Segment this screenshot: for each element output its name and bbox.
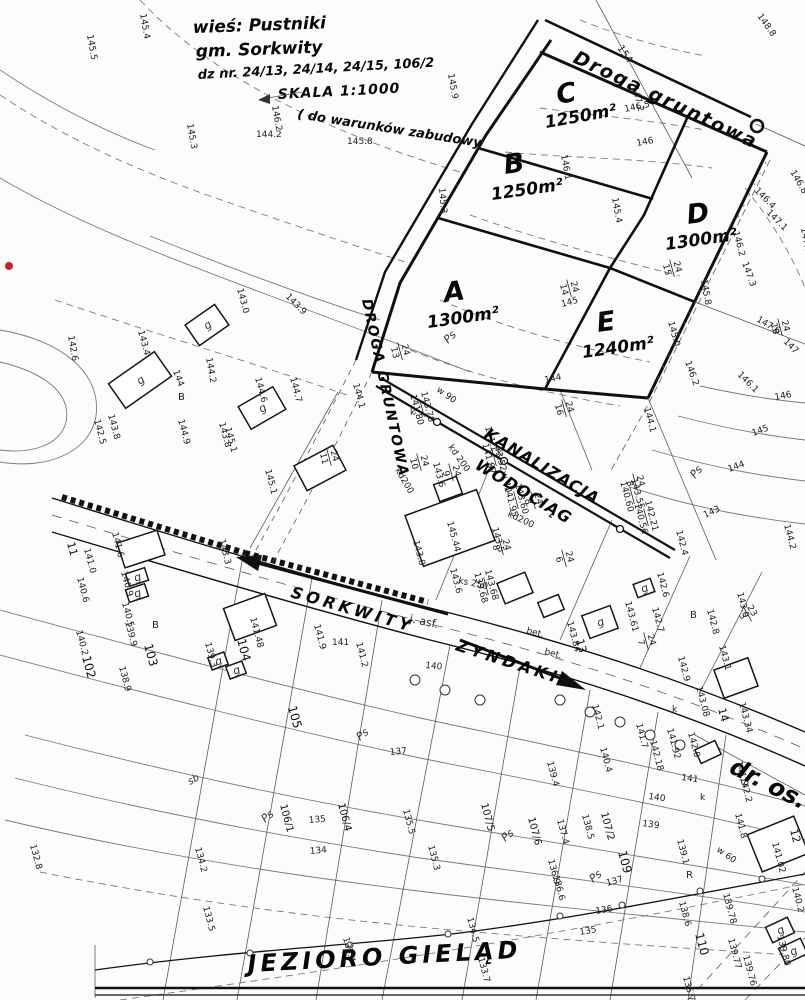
spot-height-label: 141.9 (311, 623, 327, 651)
spot-height-label: 146.4 (752, 186, 777, 211)
spot-height-label: 139.77 (725, 937, 743, 970)
spot-height-label: 141 (681, 773, 699, 785)
spot-height-label: 145.8 (698, 279, 712, 306)
spot-height-label: 137 (389, 747, 407, 758)
plot-number-label: 11 (64, 540, 80, 557)
plot-number-label: 107/5 (478, 802, 496, 833)
building-outline (714, 658, 758, 699)
spot-height-label: 140.4 (597, 746, 613, 774)
spot-height-label: 135.5 (400, 808, 416, 835)
plot-number-label: 106/1 (277, 803, 295, 834)
spot-height-label: 142.6 (65, 335, 79, 362)
spot-height-label: 142.8 (704, 608, 720, 636)
spot-height-label: 140 (425, 661, 443, 672)
fraction-denominator: 7 (635, 639, 646, 647)
spot-height-label: 134.2 (192, 846, 208, 873)
road-surface-label: bet. (543, 647, 563, 661)
spot-height-label: 142.4 (673, 529, 689, 557)
spot-height-label: 143.34 (736, 701, 754, 734)
fraction-denominator: 13 (388, 346, 401, 360)
spot-height-label: 136 (595, 904, 614, 917)
spot-height-label: 147.1 (764, 208, 789, 233)
parcel-fraction-label: 2413 (387, 340, 412, 363)
fraction-denominator: 15 (660, 263, 673, 277)
land-use-label: Ps (687, 463, 705, 481)
plot-number-label: 104 (234, 637, 253, 663)
fraction-numerator: 24 (563, 550, 576, 564)
fraction-denominator: 9 (440, 470, 451, 478)
spot-height-label: 144.1 (641, 406, 657, 433)
spot-height-label: 144.2 (256, 130, 282, 140)
road-surface-label: bet. (525, 626, 545, 640)
spot-height-label: 147.3 (739, 261, 757, 289)
fraction-denominator: 14 (557, 283, 570, 297)
spot-height-label: 142.0 (685, 731, 701, 759)
spot-height-label: 142.7 (649, 606, 665, 633)
spot-height-label: 144 (170, 369, 185, 389)
plot-letter: C (554, 77, 579, 111)
spot-height-label: 143.4 (135, 329, 151, 357)
spot-height-label: 133.5 (200, 905, 216, 932)
map-labels: 145.5145.4148.8154147.2145.9146.2145.314… (27, 12, 805, 1000)
header-note: ( do warunków zabudowy (296, 107, 483, 151)
spot-height-label: 144.9 (175, 418, 191, 446)
spot-height-label: w 90 (434, 385, 458, 406)
spot-height-label: 138.5 (579, 813, 595, 840)
plot-number-label: 106/4 (335, 802, 353, 833)
spot-height-label: 141.0 (81, 547, 97, 575)
spot-height-label: 135 (308, 815, 326, 826)
spot-height-label: 145.3 (184, 123, 198, 150)
spot-height-label: 140 (648, 792, 667, 804)
building: g (185, 304, 229, 345)
spot-height-label: B (152, 620, 159, 631)
top-road-name: Droga gruntowa (570, 47, 762, 154)
spot-height-label: 139.1 (674, 838, 690, 865)
plot-letter: B (502, 147, 527, 181)
fraction-denominator: 16 (552, 403, 565, 417)
scanned-cadastral-map: ggggggggggg 145.5145.4148.8154147.2145.9… (0, 0, 805, 1000)
spot-height-label: 146.2 (269, 105, 283, 132)
building-outline (538, 594, 564, 617)
building: g (108, 352, 171, 409)
buildings-layer: ggggggggggg (108, 304, 805, 963)
spot-height-label: 143.3 (216, 538, 232, 565)
red-mark (5, 262, 13, 270)
scale-arrowhead (258, 94, 270, 104)
spot-height-label: 144 (544, 373, 563, 386)
spot-height-label: 146.1 (735, 370, 760, 395)
plot-area: 1250m² (543, 101, 618, 133)
street-name-br: dr. os. (725, 752, 805, 815)
building (497, 572, 533, 604)
land-use-label: Ps (499, 826, 517, 844)
parcel-fraction-label: 143.70141.80 (407, 390, 436, 426)
spot-height-label: 145.4 (137, 13, 151, 40)
spot-height-label: 139.78 (720, 892, 738, 925)
spot-height-label: 145.3 (436, 187, 448, 214)
spot-height-label: 147 (781, 337, 800, 356)
plot-number-label: 103 (141, 642, 160, 668)
spot-height-label: 146.8 (787, 169, 805, 197)
spot-height-label: 141.6 (109, 531, 125, 559)
spot-height-label: 141.7 (633, 722, 649, 749)
spot-height-label: 143.9 (283, 292, 308, 317)
parcel-fraction-label: 143.68139.68 (471, 568, 500, 604)
boundary-B-A (438, 218, 610, 268)
spot-height-label: 143.61 (622, 600, 640, 633)
land-use-label: Ps (259, 807, 277, 825)
spot-height-label: 147.0 (798, 227, 805, 254)
spot-height-label: 139.4 (544, 760, 560, 788)
spot-height-label: 146 (636, 136, 655, 149)
spot-height-label: 144.1 (350, 382, 366, 409)
spot-height-label: 144.7 (287, 376, 303, 403)
plot-number-label: 107/2 (598, 811, 616, 842)
building (714, 658, 758, 699)
parcel-fraction-label: 2416 (551, 397, 576, 420)
spot-height-label: 142.5 (91, 418, 107, 445)
spot-height-label: 137 (605, 875, 624, 889)
spot-height-label: 142.6 (654, 571, 670, 599)
parcel-fraction-label: 247 (633, 630, 658, 653)
spot-height-label: 137.4 (554, 818, 570, 846)
building (538, 594, 564, 617)
spot-height-label: 138.6 (676, 900, 692, 928)
building: g (633, 578, 655, 597)
plot-number-label: 105 (285, 704, 304, 730)
spot-height-label: 144.2 (203, 357, 217, 384)
spot-height-label: 141 (332, 638, 349, 648)
building-outline (497, 572, 533, 604)
parcel-fraction-label: 246 (551, 547, 576, 570)
spot-height-label: 136.6 (550, 874, 566, 902)
fraction-denominator: 6 (553, 556, 564, 564)
parcel-fraction-label: 2418 (767, 316, 792, 339)
parcel-fraction-label: 2414 (556, 277, 581, 300)
plot-number-label: 109 (615, 849, 634, 875)
parcel-fraction-label: 2415 (659, 257, 684, 280)
spot-height-label: 144.2 (781, 523, 797, 550)
spot-height-label: 141.2 (353, 641, 369, 668)
spot-height-label: 143.8 (105, 413, 121, 441)
plot-area: 1250m² (490, 175, 565, 205)
spot-height-label: k (672, 705, 678, 715)
spot-height-label: 145 (751, 424, 771, 439)
boundary-D-E (610, 268, 695, 302)
spot-height-label: 143.1 (716, 644, 732, 671)
plot-area: 1240m² (581, 333, 656, 363)
fraction-denominator: 3 (736, 612, 748, 622)
spot-height-label: 142.9 (675, 655, 691, 683)
header-scale: SKALA 1:1000 (277, 81, 400, 103)
plot-number-label: 14 (715, 706, 731, 723)
header-commune: gm. Sorkwity (195, 38, 323, 62)
spot-height-label: 143.08 (693, 685, 711, 718)
spot-height-label: 145 (560, 296, 579, 310)
left-road-name: DROGA GRUNTOWA (358, 298, 412, 479)
spot-height-label: 148.8 (755, 12, 778, 39)
spot-height-label: 135.3 (425, 844, 441, 871)
plot-letter: A (440, 275, 467, 309)
building: g (582, 606, 618, 639)
spot-height-label: 143.0 (234, 287, 250, 315)
spot-height-label: k (700, 793, 706, 803)
map-canvas: ggggggggggg 145.5145.4148.8154147.2145.9… (0, 0, 805, 1000)
spot-height-label: 145.8 (347, 137, 373, 147)
direction-west-label: SORKWITY (289, 583, 417, 636)
spot-height-label: 134 (309, 846, 327, 857)
fraction-numerator: 24 (450, 464, 463, 478)
fraction-numerator: 24 (645, 633, 658, 647)
plot-area: 1300m² (426, 303, 501, 333)
spot-height-label: 139 (642, 819, 661, 831)
manhole (617, 526, 624, 533)
land-use-label: Ps (354, 725, 372, 743)
spot-height-label: B (690, 610, 697, 621)
plot-number-label: 107/6 (525, 816, 543, 847)
spot-height-label: R (686, 870, 693, 881)
building: g (226, 661, 247, 680)
plot-area: 1300m² (664, 225, 739, 255)
spot-height-label: 140.6 (74, 576, 90, 604)
spot-height-label: 138.9 (116, 665, 132, 693)
spot-height-label: w 60 (714, 845, 738, 866)
spot-height-label: 145.1 (262, 468, 278, 495)
spot-height-label: 146.2 (682, 360, 700, 388)
spot-height-label: 144 (727, 459, 747, 474)
spot-height-label: 145.4 (609, 197, 623, 224)
spot-height-label: 141.8 (732, 812, 748, 840)
header-village: wieś: Pustniki (192, 13, 327, 38)
spot-height-label: 139.76 (740, 954, 758, 987)
plot-letter: E (595, 306, 618, 339)
spot-height-label: B (178, 392, 185, 403)
plot-letter: D (685, 197, 712, 231)
direction-east-label: ZYNDAKI (453, 635, 563, 687)
spot-height-label: 135 (579, 925, 598, 938)
spot-height-label: 132.8 (27, 843, 43, 871)
spot-height-label: 143 (702, 504, 722, 520)
spot-height-label: 145.9 (445, 73, 459, 100)
spot-height-label: 145.5 (84, 34, 98, 61)
spot-height-label: 145.0 (665, 320, 681, 348)
